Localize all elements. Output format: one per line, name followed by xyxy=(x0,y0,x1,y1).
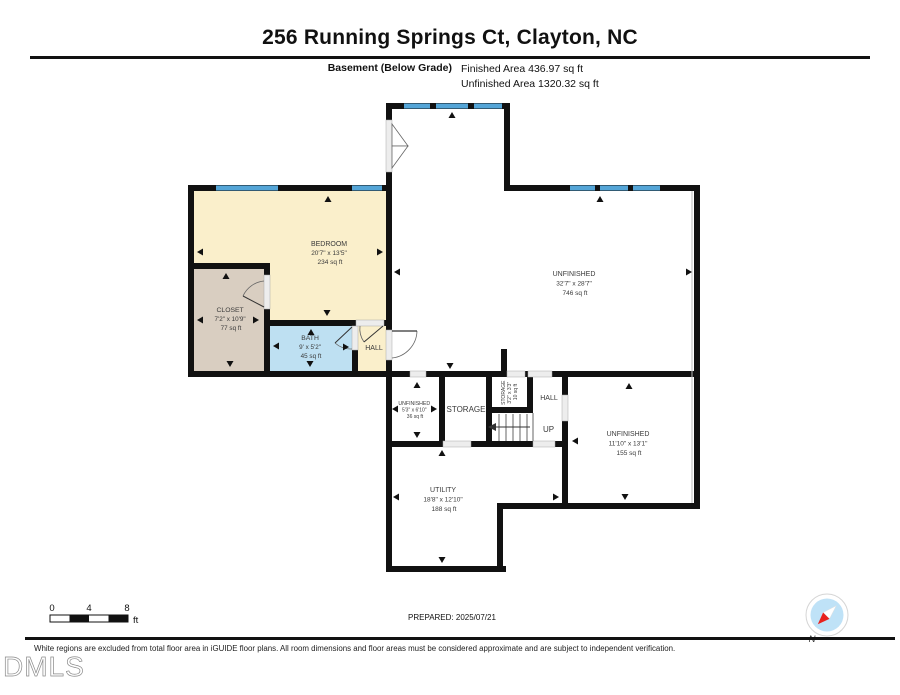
window xyxy=(436,104,468,109)
room-fills xyxy=(192,189,388,373)
scale-unit: ft xyxy=(133,615,139,626)
unfinished-small-label: UNFINISHED 5'3" x 6'10" 36 sq ft xyxy=(398,401,431,420)
window xyxy=(474,104,502,109)
unfinished-right-label: UNFINISHED 11'10" x 13'1" 155 sq ft xyxy=(607,431,652,457)
window xyxy=(216,186,278,191)
double-door xyxy=(392,124,408,146)
scale-tick-8: 8 xyxy=(124,603,129,614)
storage-small-label: STORAGE 3'2" x 3'3" 10 sq ft xyxy=(501,379,519,405)
disclaimer-text: White regions are excluded from total fl… xyxy=(34,644,675,653)
hall-upper-label: HALL xyxy=(365,345,383,352)
double-door xyxy=(392,146,408,168)
footer-divider xyxy=(25,637,895,640)
bath-label: BATH 9' x 5'2" 45 sq ft xyxy=(299,335,323,360)
compass-n-label: N xyxy=(809,634,816,645)
window xyxy=(600,186,628,191)
stairs xyxy=(488,413,533,441)
hall-lower-label: HALL xyxy=(540,395,558,402)
window xyxy=(570,186,595,191)
scale-tick-0: 0 xyxy=(49,603,54,614)
unfinished-main-label: UNFINISHED 32'7" x 28'7" 746 sq ft xyxy=(553,271,598,297)
svg-text:STORAGE 3'2" x 3'3": STORAGE 3'2" x 3'3" 10 sq ft xyxy=(501,379,519,405)
floorplan-page: 256 Running Springs Ct, Clayton, NC Base… xyxy=(0,0,900,695)
window xyxy=(404,104,430,109)
floorplan-drawing: BEDROOM 20'7" x 13'5" 234 sq ft CLOSET 7… xyxy=(0,0,900,695)
windows xyxy=(216,104,660,191)
prepared-date: PREPARED: 2025/07/21 xyxy=(408,613,496,622)
storage-label: STORAGE xyxy=(447,405,486,414)
window xyxy=(633,186,660,191)
door-arc xyxy=(392,331,417,358)
stairs-up-label: UP xyxy=(543,425,554,434)
window xyxy=(352,186,382,191)
scale-bar: 0 4 8 ft xyxy=(49,603,138,626)
utility-label: UTILITY 18'8" x 12'10" 188 sq ft xyxy=(423,487,464,513)
dmls-logo: DMLS xyxy=(3,651,85,682)
scale-tick-4: 4 xyxy=(86,603,91,614)
